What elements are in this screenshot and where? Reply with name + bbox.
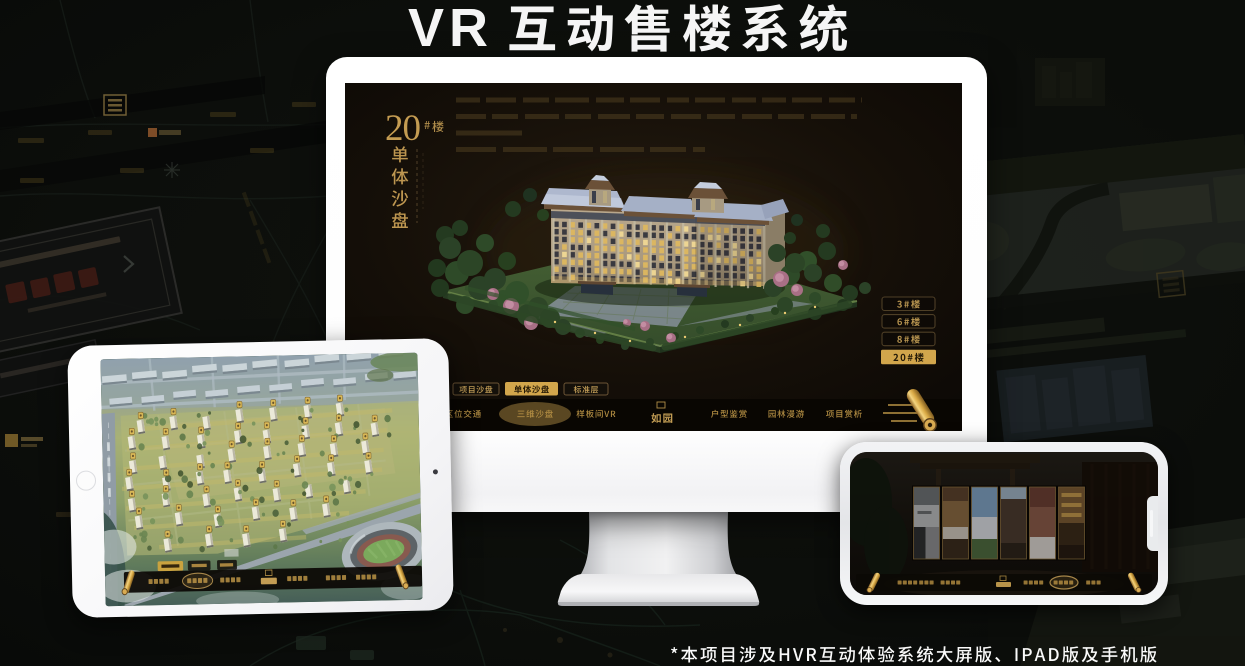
svg-text:20: 20 (385, 108, 421, 149)
svg-text:VR: VR (408, 0, 493, 58)
